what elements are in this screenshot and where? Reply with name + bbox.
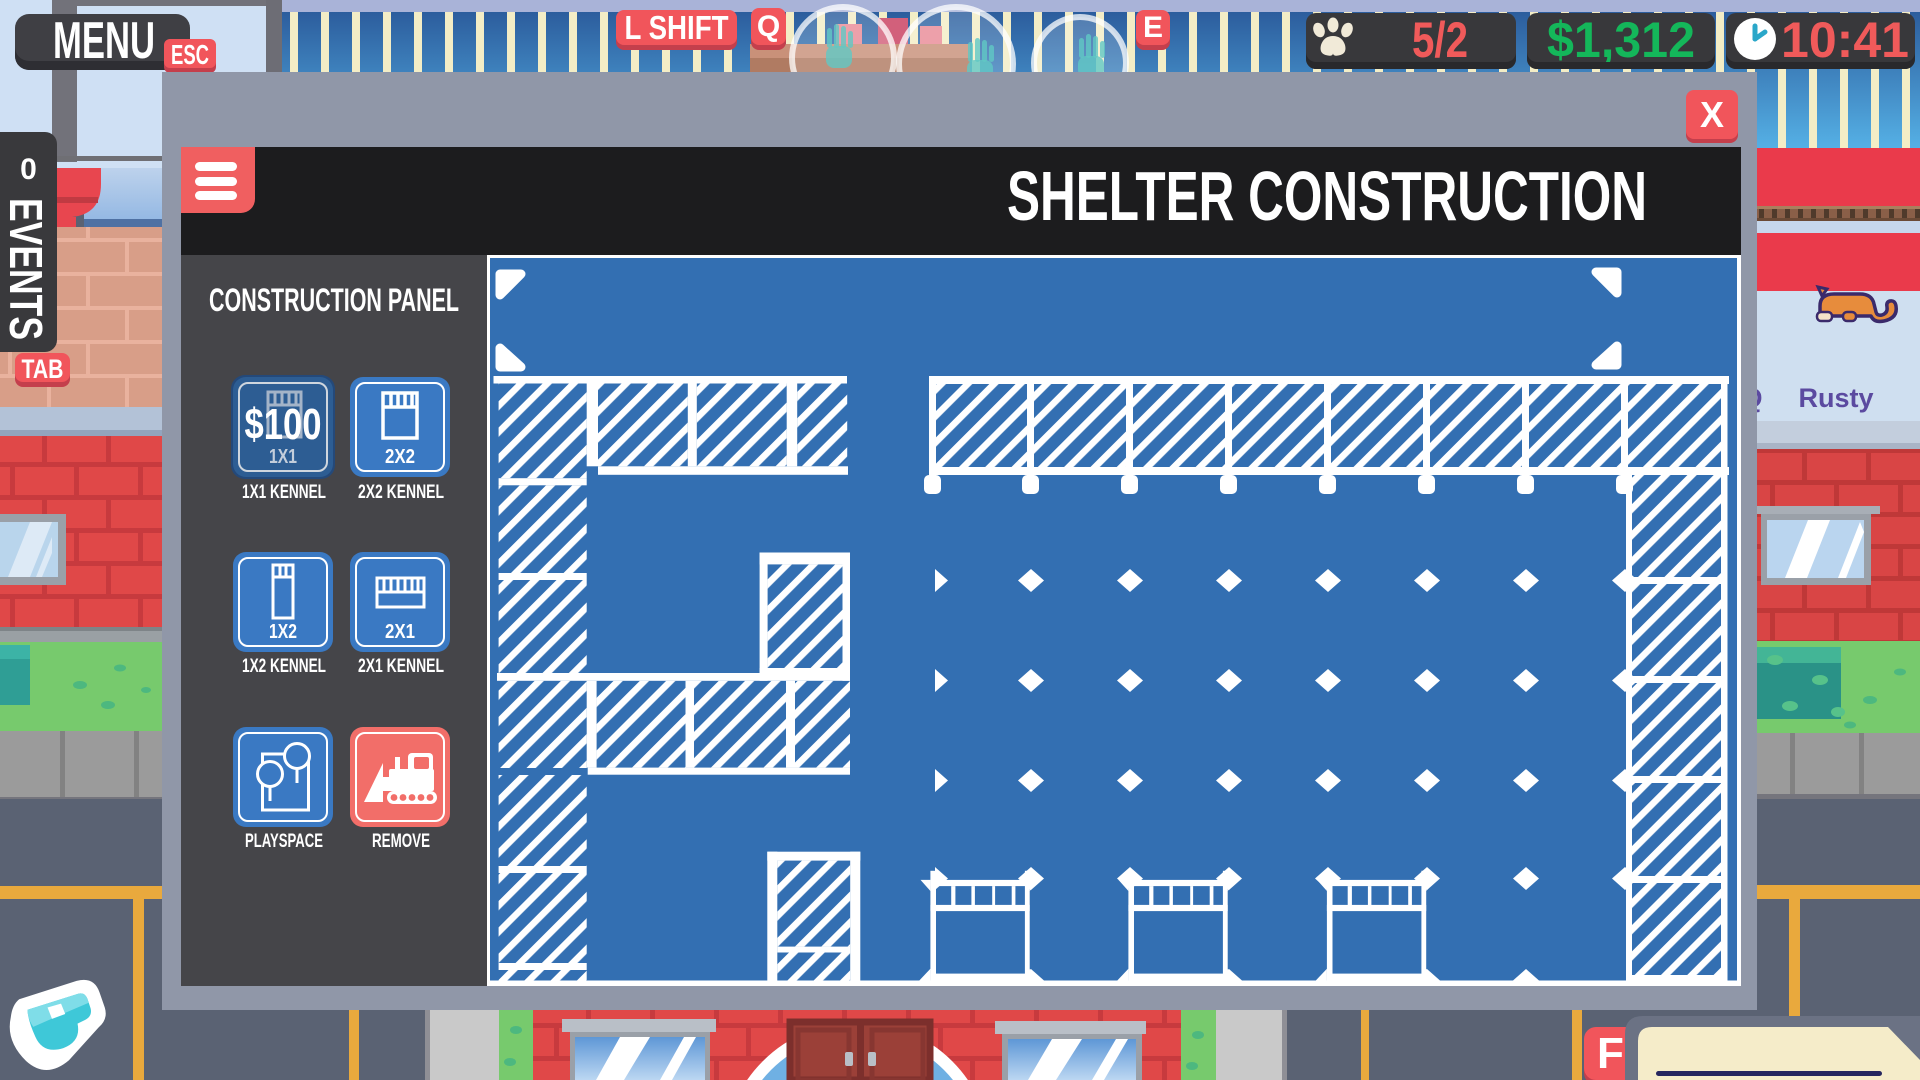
svg-text:PLAYSPACE: PLAYSPACE bbox=[245, 831, 323, 852]
svg-text:SHELTER CONSTRUCTION: SHELTER CONSTRUCTION bbox=[1007, 169, 1647, 223]
svg-text:5/2: 5/2 bbox=[1412, 18, 1468, 62]
svg-text:MENU: MENU bbox=[53, 20, 155, 62]
svg-text:$1,312: $1,312 bbox=[1547, 18, 1695, 62]
svg-text:Rusty: Rusty bbox=[1798, 383, 1873, 413]
svg-text:2X2 KENNEL: 2X2 KENNEL bbox=[358, 482, 444, 503]
svg-text:$100: $100 bbox=[245, 400, 322, 449]
svg-text:1X1 KENNEL: 1X1 KENNEL bbox=[242, 482, 326, 503]
svg-text:2X2: 2X2 bbox=[385, 446, 415, 468]
svg-text:ESC: ESC bbox=[171, 39, 209, 68]
svg-text:EVENTS: EVENTS bbox=[0, 198, 52, 340]
svg-text:1X2 KENNEL: 1X2 KENNEL bbox=[242, 656, 326, 677]
svg-text:REMOVE: REMOVE bbox=[372, 831, 430, 852]
svg-text:2X1 KENNEL: 2X1 KENNEL bbox=[358, 656, 444, 677]
svg-text:L SHIFT: L SHIFT bbox=[625, 10, 729, 45]
svg-text:10:41: 10:41 bbox=[1781, 18, 1909, 62]
svg-text:TAB: TAB bbox=[22, 354, 64, 382]
svg-text:1X2: 1X2 bbox=[269, 621, 297, 643]
svg-text:2X1: 2X1 bbox=[385, 621, 415, 643]
svg-text:1X1: 1X1 bbox=[269, 446, 297, 468]
